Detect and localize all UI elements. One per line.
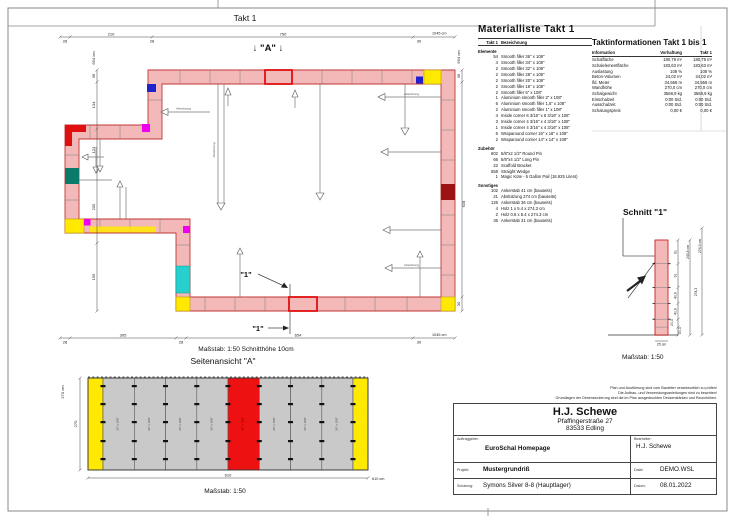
takt-info: Taktinformationen Takt 1 bis 1 Informati…	[592, 38, 712, 114]
svg-text:1045 cm: 1045 cm	[432, 32, 447, 36]
svg-text:654: 654	[295, 333, 302, 338]
svg-text:36" x 108": 36" x 108"	[272, 417, 276, 431]
schnitt-scale: Maßstab: 1:50	[622, 354, 664, 361]
client-row: Auftraggeber: EuroSchal Homepage Bearbei…	[454, 436, 716, 463]
svg-text:124: 124	[91, 146, 96, 153]
takt-info-header: Information Vorhaltung Takt 1	[592, 50, 712, 57]
prop-lines	[623, 218, 655, 298]
svg-text:30: 30	[417, 39, 422, 44]
formwork-label: Schalung:	[457, 484, 483, 488]
svg-text:694 cm: 694 cm	[456, 50, 461, 64]
svg-text:36" x 108": 36" x 108"	[334, 417, 338, 431]
company-name: H.J. Schewe	[454, 406, 716, 418]
aluminium-filler-blue	[416, 77, 423, 84]
svg-text:36" x 108": 36" x 108"	[116, 417, 120, 431]
section-label-top: "1"	[240, 270, 252, 279]
svg-text:28: 28	[150, 39, 155, 44]
material-list-title: Materialliste Takt 1	[478, 24, 592, 35]
sideview-panels	[88, 378, 368, 470]
svg-text:30: 30	[417, 340, 422, 345]
company-street: Pfaffingerstraße 27	[454, 418, 716, 425]
svg-text:274,3: 274,3	[694, 288, 698, 297]
formwork-cell: Schalung: Symons Silver 8-8 (Hauptlager)	[454, 479, 631, 494]
svg-text:36" x 108": 36" x 108"	[241, 417, 245, 431]
svg-text:305: 305	[120, 333, 127, 338]
material-rows-zubehoer: 6025/8"x2 1/2" Round Pin665/8"x4 1/2" Lo…	[478, 151, 592, 181]
date-label: Datum:	[634, 484, 660, 488]
file-cell: Datei: DEMO.WSL	[631, 463, 716, 478]
material-row: 36Ankerstab 31 cm (bauseits)	[478, 218, 592, 224]
svg-text:36: 36	[91, 73, 96, 78]
disclaimer: Plan und Ausführung sind vom Bauleiter v…	[453, 386, 717, 400]
sideview-corner-panel	[353, 378, 368, 470]
svg-text:40,6: 40,6	[674, 292, 678, 299]
brace-arrowheads	[82, 88, 423, 272]
date-value: 08.01.2022	[660, 482, 692, 489]
schnitt-title: Schnitt "1"	[623, 207, 667, 217]
takt-info-title: Taktinformationen Takt 1 bis 1	[592, 38, 712, 47]
takt-info-rows: Schalfläche180,79 m²180,79 m²Schalelemen…	[592, 57, 712, 113]
svg-text:243,8 cm: 243,8 cm	[686, 245, 690, 259]
corner-element-yellow-sw	[65, 219, 84, 233]
takt-info-row: Schalungspreis0,00 €0,00 €	[592, 108, 712, 114]
brace-label: Abstützung	[176, 107, 191, 111]
section-label-bottom: "1"	[252, 324, 264, 333]
svg-text:36: 36	[456, 73, 461, 78]
svg-text:628: 628	[461, 200, 466, 207]
client-value: EuroSchal Homepage	[485, 445, 627, 452]
formwork-row: Schalung: Symons Silver 8-8 (Hauptlager)…	[454, 479, 716, 494]
material-rows-elemente: 54Smooth filler 36" x 108"4Smooth filler…	[478, 54, 592, 143]
svg-text:750: 750	[280, 32, 287, 37]
svg-text:28: 28	[179, 340, 184, 345]
svg-text:205: 205	[91, 203, 96, 210]
material-list-header: Takt 1 Bezeichnung	[478, 38, 592, 46]
svg-text:1045 cm: 1045 cm	[432, 333, 447, 337]
svg-text:61: 61	[674, 250, 678, 254]
editor-label: Bearbeiter:	[634, 437, 713, 441]
project-cell: Projekt: Mustergrundriß	[454, 463, 631, 478]
brace-label: Abstützung	[404, 263, 419, 267]
svg-text:610 cm: 610 cm	[372, 477, 384, 481]
pointer-arrow	[627, 281, 640, 291]
svg-text:25 cm: 25 cm	[657, 343, 666, 347]
svg-text:610: 610	[225, 473, 232, 478]
filler-element-red-bottom	[289, 297, 317, 311]
client-label: Auftraggeber:	[457, 437, 627, 441]
aluminium-filler-blue	[147, 84, 156, 92]
inside-corner-magenta	[183, 226, 190, 233]
svg-text:210: 210	[108, 32, 115, 37]
company-city: 83533 Edling	[454, 425, 716, 432]
svg-text:36" x 108": 36" x 108"	[303, 417, 307, 431]
file-label: Datei:	[634, 468, 660, 472]
svg-text:36" x 108": 36" x 108"	[147, 417, 151, 431]
file-value: DEMO.WSL	[660, 466, 694, 473]
material-row: 1Magic Kote - 5 Gallon Pail (18.925 Lite…	[478, 174, 592, 180]
project-label: Projekt:	[457, 468, 483, 472]
svg-text:274,3 cm: 274,3 cm	[698, 239, 702, 253]
floor-plan: Abstützung Abstützung Abstützung Abstütz…	[59, 32, 467, 354]
svg-text:134: 134	[91, 101, 96, 108]
plan-scale-note: Maßstab: 1:50 Schnitthöhe 10cm	[198, 346, 293, 353]
formwork-value: Symons Silver 8-8 (Hauptlager)	[483, 482, 571, 489]
svg-text:28: 28	[63, 39, 68, 44]
svg-text:36" x 108": 36" x 108"	[209, 417, 213, 431]
filler-element-cyan	[176, 266, 190, 293]
svg-text:40,6: 40,6	[674, 308, 678, 315]
filler-strip-yellow	[90, 227, 156, 233]
date-cell: Datum: 08.01.2022	[631, 479, 716, 494]
filler-element-teal	[65, 168, 79, 184]
svg-text:270: 270	[73, 420, 78, 427]
svg-text:694 cm: 694 cm	[91, 51, 96, 65]
project-row: Projekt: Mustergrundriß Datei: DEMO.WSL	[454, 463, 716, 479]
section-view: Schnitt "1" 61 61 40,6 40,6 20,3 20,3 24…	[608, 207, 704, 361]
editor-value: H.J. Schewe	[636, 443, 713, 450]
braces: Abstützung Abstützung Abstützung Abstütz…	[79, 84, 441, 297]
svg-text:30: 30	[456, 301, 461, 306]
sideview-corner-panel	[88, 378, 103, 470]
svg-text:61: 61	[674, 274, 678, 278]
svg-text:36" x 108": 36" x 108"	[178, 417, 182, 431]
company-block: H.J. Schewe Pfaffingerstraße 27 83533 Ed…	[454, 404, 716, 436]
disclaimer-line: Grundlagen der Dimensionierung sind die …	[453, 396, 717, 401]
material-rows-sonstiges: 102Ankerstab 41 cm (bauseits)21Abstützun…	[478, 188, 592, 224]
brace-label: Abstützung	[404, 92, 419, 96]
material-list: Materialliste Takt 1 Takt 1 Bezeichnung …	[478, 24, 592, 224]
takt-title: Takt 1	[234, 13, 257, 23]
corner-element-yellow-se	[441, 297, 455, 311]
filler-element-darkred	[441, 184, 455, 200]
brace-label: Abstützung	[212, 142, 216, 157]
sideview-scale: Maßstab: 1:50	[204, 488, 246, 495]
side-view: Seitenansicht "A" 36" x 108" 36" x 108" …	[60, 356, 384, 495]
title-block: Plan und Ausführung sind vom Bauleiter v…	[453, 386, 717, 495]
title-block-box: H.J. Schewe Pfaffingerstraße 27 83533 Ed…	[453, 403, 717, 495]
svg-text:20,3: 20,3	[670, 319, 674, 326]
svg-text:20,3: 20,3	[678, 327, 682, 334]
corner-element-yellow-bottom	[176, 297, 190, 311]
filler-element-red-top	[265, 70, 292, 84]
svg-text:195: 195	[91, 273, 96, 280]
inside-corner-magenta	[142, 124, 150, 132]
view-a-marker: ↓ "A" ↓	[253, 43, 284, 54]
project-value: Mustergrundriß	[483, 466, 530, 473]
sideview-title: Seitenansicht "A"	[190, 356, 255, 366]
material-row: 2Wraparound corner 14" x 14" x 108"	[478, 137, 592, 143]
svg-text:270 cm: 270 cm	[60, 385, 65, 399]
svg-text:28: 28	[63, 340, 68, 345]
corner-element-yellow-topright	[424, 70, 441, 84]
client-cell: Auftraggeber: EuroSchal Homepage	[454, 436, 631, 462]
editor-cell: Bearbeiter: H.J. Schewe	[631, 436, 716, 462]
inside-corner-magenta	[84, 219, 91, 226]
plan-sheet: Takt 1 ↓ "A" ↓	[0, 0, 730, 516]
